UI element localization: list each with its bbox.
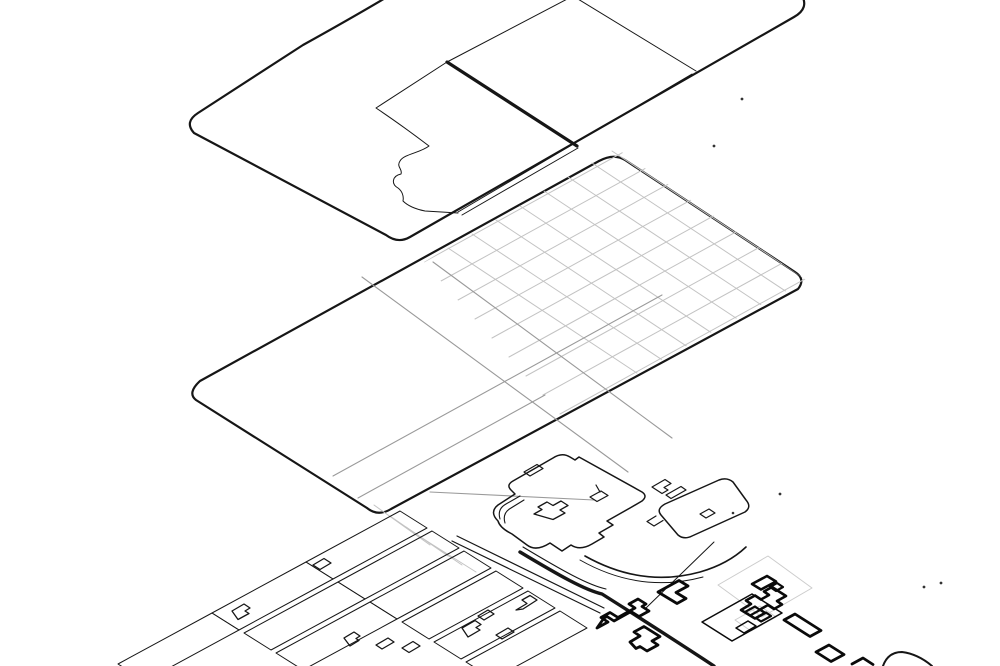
small-footprint [402, 642, 420, 653]
parcel-blocks [118, 511, 587, 666]
exploded-axonometric-diagram [0, 0, 1000, 666]
grid-line [458, 63, 888, 300]
campus-inner-rect [700, 509, 715, 518]
grid-line [492, 101, 922, 338]
small-footprint [232, 604, 250, 620]
building-C [630, 627, 660, 652]
parcel-block [244, 582, 365, 650]
grid-line [448, 248, 868, 526]
major-street-lines [333, 262, 672, 500]
corner-arc [883, 652, 932, 666]
grid-line [441, 44, 871, 281]
parcel-block [370, 551, 491, 619]
parcel-block [306, 511, 427, 579]
building-cut-bottom [816, 645, 844, 662]
campus-hook [647, 516, 663, 526]
grid-line [543, 158, 973, 395]
grid-line [544, 191, 964, 469]
parcel-block [338, 531, 459, 599]
top-layer-panel-edge [447, 0, 573, 62]
grid-line [526, 139, 956, 376]
top-layer-thick-divider [447, 62, 577, 146]
campus-plan [494, 455, 749, 608]
campus-sweeping-road [585, 547, 746, 577]
grid-spill-line [422, 538, 476, 572]
grid-line [568, 177, 988, 455]
grid-line [509, 120, 939, 357]
top-layer-notch-boundary [376, 62, 458, 213]
small-footprint [376, 638, 394, 649]
grid-line [496, 220, 916, 498]
parcel-block [276, 602, 397, 666]
building-cut-bottom [852, 658, 873, 665]
grid-line [475, 82, 905, 319]
diagonal-road [646, 542, 714, 608]
major-street [433, 262, 672, 438]
grid-line [424, 25, 854, 262]
street-grid [424, 25, 1000, 526]
small-footprint [516, 596, 537, 611]
dot [713, 145, 716, 148]
parcel-block [118, 613, 239, 666]
building-bar [597, 599, 649, 628]
small-footprint [462, 621, 481, 638]
parcel-block [434, 591, 555, 659]
street-edge-line [523, 547, 606, 589]
campus-right-lobe [659, 479, 749, 538]
campus-inner-building [534, 501, 568, 520]
grid-line [472, 234, 892, 512]
middle-layer-outline [192, 157, 801, 513]
grid-line [592, 163, 1000, 441]
building-thick-bar [784, 614, 821, 637]
campus-left-lobe [494, 455, 646, 551]
campus-roof-tab [590, 485, 608, 502]
campus-roof-tab [524, 465, 543, 477]
dot [940, 582, 943, 585]
survey-dots [713, 98, 943, 589]
grid-overflow-lines [374, 505, 476, 572]
parcel-block [212, 562, 333, 630]
diagram-canvas [0, 0, 1000, 666]
dot [779, 493, 782, 496]
dot [923, 586, 926, 589]
campus-curved-road [499, 496, 520, 519]
major-street [362, 277, 628, 472]
top-layer-inner-offset-line [458, 74, 692, 212]
bottom-building-fabric-layer [118, 98, 942, 666]
top-layer-panel-edge [573, 0, 696, 71]
grid-line [560, 177, 990, 414]
grid-line [612, 151, 1000, 429]
top-boundary-layer [190, 0, 804, 240]
dot [741, 98, 744, 101]
dot [732, 512, 735, 515]
middle-street-grid-layer [192, 25, 1000, 572]
campus-l-piece [652, 480, 671, 494]
